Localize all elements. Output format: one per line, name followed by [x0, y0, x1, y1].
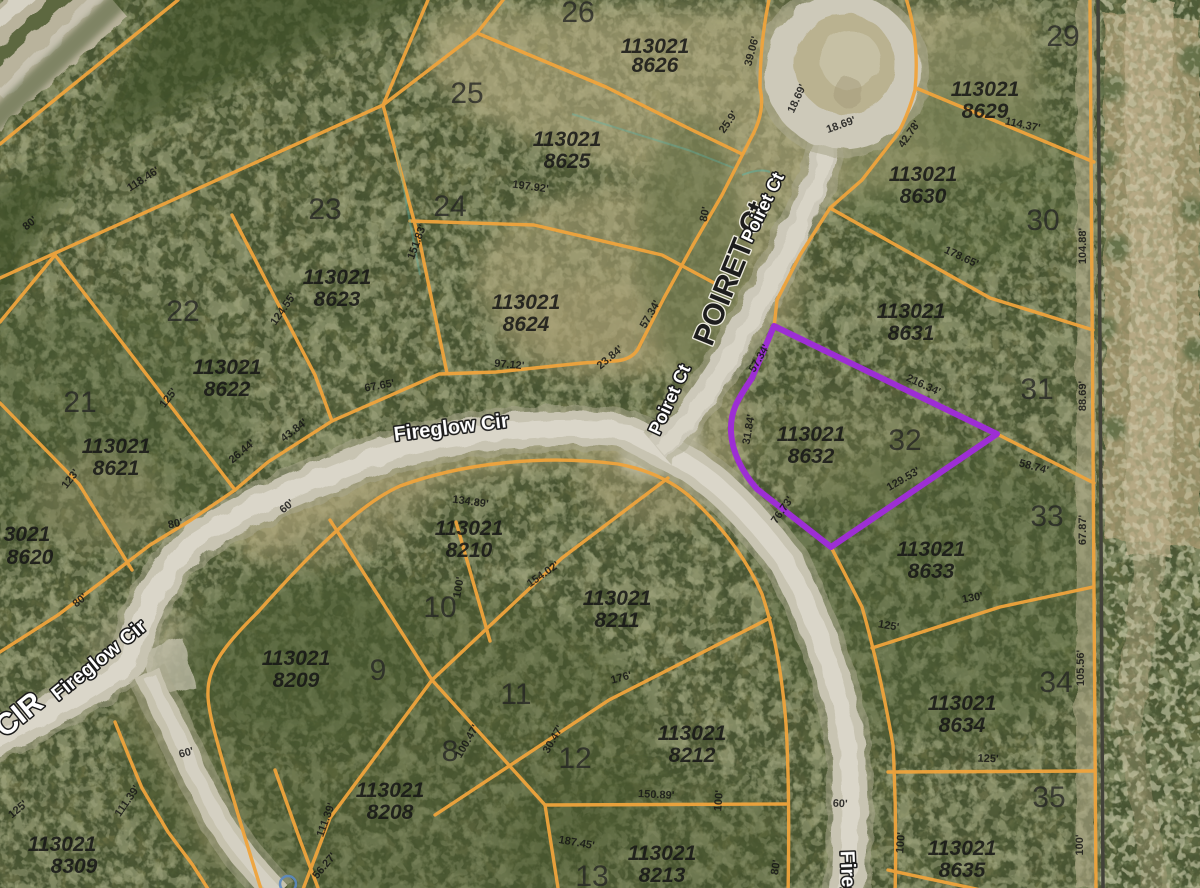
svg-text:113021: 113021 [262, 647, 331, 670]
svg-text:8212: 8212 [669, 744, 716, 767]
svg-text:8634: 8634 [939, 714, 986, 737]
svg-text:113021: 113021 [492, 291, 561, 314]
svg-text:30: 30 [1026, 204, 1059, 237]
svg-text:113021: 113021 [877, 300, 946, 323]
svg-text:113021: 113021 [303, 266, 372, 289]
svg-text:33: 33 [1030, 500, 1063, 533]
svg-text:35: 35 [1032, 781, 1065, 814]
svg-text:22: 22 [166, 295, 199, 328]
svg-text:105.56': 105.56' [1075, 649, 1087, 686]
svg-text:3021: 3021 [4, 523, 51, 546]
svg-text:8623: 8623 [314, 288, 361, 311]
svg-text:8309: 8309 [51, 855, 98, 878]
svg-text:29: 29 [1046, 20, 1079, 53]
svg-text:113021: 113021 [356, 779, 425, 802]
svg-text:100': 100' [712, 789, 726, 811]
svg-text:8620: 8620 [7, 546, 54, 569]
svg-text:8209: 8209 [273, 669, 320, 692]
svg-text:24: 24 [433, 190, 466, 223]
svg-text:25: 25 [450, 77, 483, 110]
svg-text:67.87': 67.87' [1077, 515, 1089, 546]
svg-text:100': 100' [894, 831, 908, 853]
svg-text:113021: 113021 [82, 435, 151, 458]
svg-text:8626: 8626 [632, 54, 679, 77]
svg-text:31: 31 [1020, 373, 1053, 406]
svg-text:21: 21 [63, 386, 96, 419]
svg-text:113021: 113021 [193, 356, 262, 379]
svg-text:113021: 113021 [533, 128, 602, 151]
svg-text:13: 13 [575, 860, 608, 888]
svg-text:125': 125' [977, 753, 999, 766]
svg-text:113021: 113021 [951, 78, 1020, 101]
svg-text:60': 60' [832, 798, 848, 811]
svg-text:113021: 113021 [777, 423, 846, 446]
svg-text:12: 12 [558, 742, 591, 775]
svg-text:9: 9 [370, 654, 387, 687]
svg-text:34: 34 [1039, 666, 1072, 699]
svg-text:88.69': 88.69' [1077, 381, 1089, 412]
svg-text:32: 32 [888, 424, 921, 457]
svg-text:8633: 8633 [908, 560, 955, 583]
svg-text:8211: 8211 [594, 609, 639, 632]
svg-text:113021: 113021 [928, 837, 997, 860]
svg-text:113021: 113021 [628, 842, 697, 865]
svg-text:8629: 8629 [962, 100, 1009, 123]
svg-text:8631: 8631 [888, 322, 935, 345]
svg-text:8635: 8635 [939, 859, 986, 882]
svg-text:8208: 8208 [367, 801, 414, 824]
svg-text:8622: 8622 [204, 378, 251, 401]
svg-text:8624: 8624 [503, 313, 550, 336]
svg-text:113021: 113021 [28, 833, 97, 856]
svg-text:113021: 113021 [928, 692, 997, 715]
svg-text:26: 26 [561, 0, 594, 29]
svg-text:100': 100' [1074, 834, 1086, 855]
svg-text:150.89': 150.89' [638, 788, 675, 802]
svg-text:8625: 8625 [544, 150, 591, 173]
svg-text:8213: 8213 [639, 864, 686, 887]
svg-text:104.88': 104.88' [1077, 227, 1089, 264]
svg-text:8630: 8630 [900, 185, 947, 208]
svg-text:8210: 8210 [446, 539, 493, 562]
svg-text:8632: 8632 [788, 445, 835, 468]
svg-text:113021: 113021 [583, 587, 652, 610]
svg-text:8621: 8621 [93, 457, 140, 480]
svg-text:113021: 113021 [889, 163, 958, 186]
svg-text:113021: 113021 [897, 538, 966, 561]
svg-text:11: 11 [500, 678, 531, 711]
svg-text:23: 23 [308, 193, 341, 226]
svg-text:113021: 113021 [435, 517, 504, 540]
svg-text:113021: 113021 [658, 722, 727, 745]
svg-text:Fireglow: Fireglow [836, 850, 861, 888]
